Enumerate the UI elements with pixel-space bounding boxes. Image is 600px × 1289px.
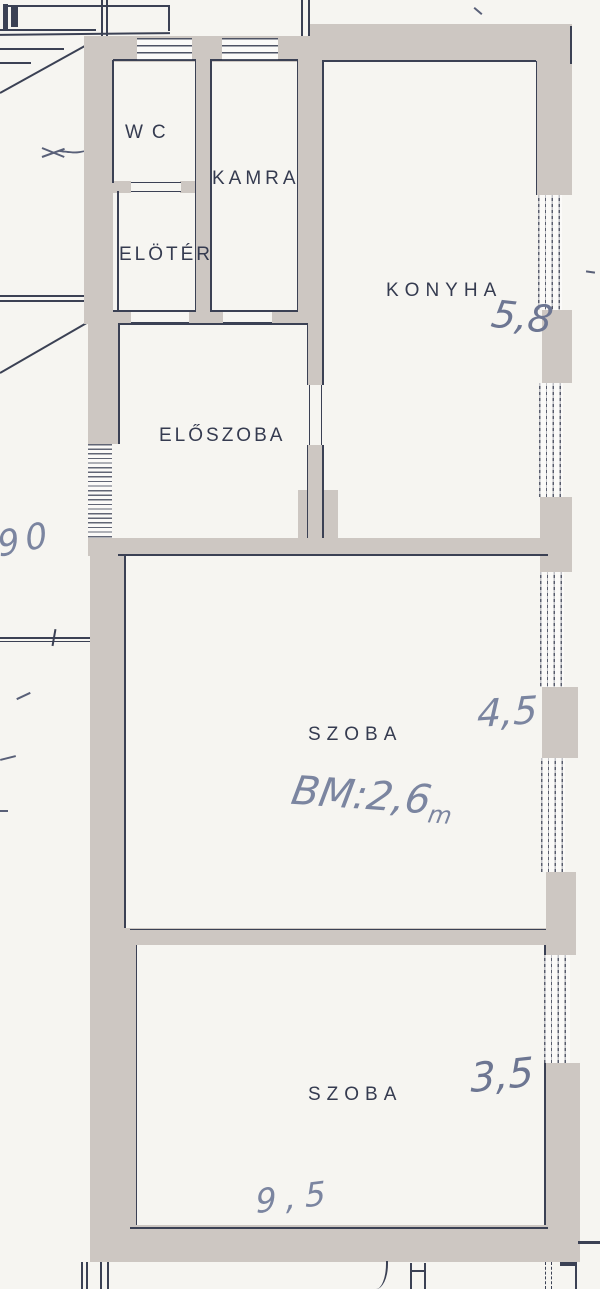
edge-line [307,324,309,385]
pencil-mark [474,7,483,15]
stair-line [168,5,170,31]
wall-right-pier [542,687,578,758]
window-right-szoba1-1 [540,572,564,687]
measurement-inner-height: BM:2,6m [288,768,458,825]
edge-line [124,556,126,928]
room-label-wc: WC [125,123,175,142]
room-label-eloter: ELÖTÉR [119,245,213,264]
wall-right-pier [546,872,576,955]
floor-plan: WC KAMRA ELÖTÉR KONYHA ELŐSZOBA SZOBA SZ… [0,0,600,1289]
door-swing-below [376,1261,388,1289]
pencil-mark [16,692,30,700]
measurement-szoba-middle-width: 4,5 [476,688,538,736]
stair-line [0,48,64,50]
dimension-line [0,637,90,639]
wall-right-bottom [545,1063,580,1225]
corner-mark-below [575,1262,577,1289]
wall-left-szoba [90,538,124,1262]
wall-bottom [100,1225,580,1262]
wall-right-pier [536,24,572,195]
door-eloter-eloszoba [131,311,189,323]
wall-left-upper [84,36,113,312]
wall-edge-above [101,0,103,36]
edge-line [570,26,572,64]
wall-kamra-konyha [298,58,322,312]
wall-edge-below [86,1262,88,1289]
column-mark-below [410,1263,412,1289]
door-eloszoba-konyha [309,385,322,445]
window-right-konyha-1 [538,195,562,310]
wall-edge-above [106,0,108,36]
wall-top-konyha [310,24,572,62]
stair-diagonal [0,322,87,374]
window-right-konyha-2 [539,383,563,497]
stair-line [0,62,31,64]
stair-line [4,5,170,7]
room-label-konyha: KONYHA [386,281,502,300]
column-mark-below [424,1263,426,1289]
inner-height-unit: m [426,800,454,829]
edge-line [118,324,120,444]
wall-wc-door-stub [113,181,131,193]
room-label-kamra: KAMRA [212,169,300,188]
window-top-wc [137,38,192,60]
pencil-mark [0,810,8,812]
wall-edge-below [107,1262,109,1289]
edge-line [322,60,536,62]
edge-line [307,445,309,538]
edge-line [322,61,324,385]
wall-eloszoba-konyha-pier [298,490,338,540]
measurement-szoba-bottom-width: 3,5 [470,1049,534,1102]
stair-line [0,295,86,297]
column-mark-below [410,1270,426,1272]
stair-line [0,29,96,31]
edge-line [112,60,114,183]
wall-szoba-divider [124,928,548,945]
pencil-mark [586,270,595,273]
measurement-szoba-bottom-length: 9,5 [255,1172,335,1221]
edge-line [195,60,197,312]
edge-line [130,1227,548,1229]
pencil-mark [0,755,16,761]
measurement-stairwell: 90 [0,514,56,565]
wall-eloszoba-konyha-upper [308,324,322,385]
wall-edge-below [81,1262,83,1289]
room-label-szoba-bottom: SZOBA [308,1085,402,1104]
stair-corner-mark [11,7,18,27]
wall-right-pier [540,497,572,572]
tie-line-right [578,1241,600,1244]
wall-left-szoba-bottom-thick [124,945,136,1262]
window-top-kamra [222,38,278,60]
measurement-konyha-width: 5,8 [488,292,556,342]
edge-line [136,945,138,1225]
window-edge-below [545,1262,546,1289]
door-wc-eloter [131,182,181,192]
edge-line [118,554,548,556]
inner-height-value: BM:2,6 [288,768,435,823]
room-label-szoba-middle: SZOBA [308,725,402,744]
door-kamra-eloszoba [223,311,272,323]
wall-left-eloszoba [88,312,118,444]
edge-line [118,323,308,325]
stair-diagonal [0,45,86,94]
window-right-szoba1-2 [541,758,565,872]
edge-line [130,929,546,931]
wall-edge-below [100,1262,102,1289]
wall-eloszoba-konyha-lower [308,445,322,491]
wall-eloszoba-top [84,310,322,324]
edge-line [322,445,324,538]
stair-line [0,300,86,302]
dimension-line [0,641,90,642]
window-edge-below [551,1262,552,1289]
stair-corner-mark [3,4,8,30]
window-right-szoba2 [544,955,570,1063]
wall-wc-kamra [196,58,210,312]
edge-line [536,61,538,195]
room-label-eloszoba: ELŐSZOBA [159,426,285,445]
entrance-door [88,444,112,538]
